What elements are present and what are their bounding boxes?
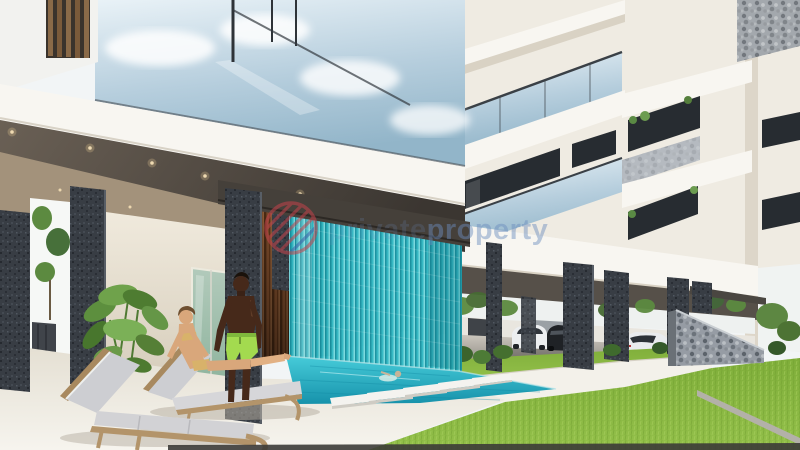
stone-column [0, 210, 30, 392]
fence [32, 322, 56, 352]
watermark-text-property: property [427, 214, 549, 246]
render-canvas: privateproperty [0, 0, 800, 450]
garden-opening [30, 198, 70, 370]
watermark-text: privateproperty [328, 214, 548, 246]
property-listing-photo: privateproperty [0, 0, 800, 450]
watermark-text-private: private [328, 214, 427, 246]
wood-slat-panel [46, 0, 90, 58]
stone-column [563, 262, 594, 370]
balcony-plant [629, 116, 637, 124]
